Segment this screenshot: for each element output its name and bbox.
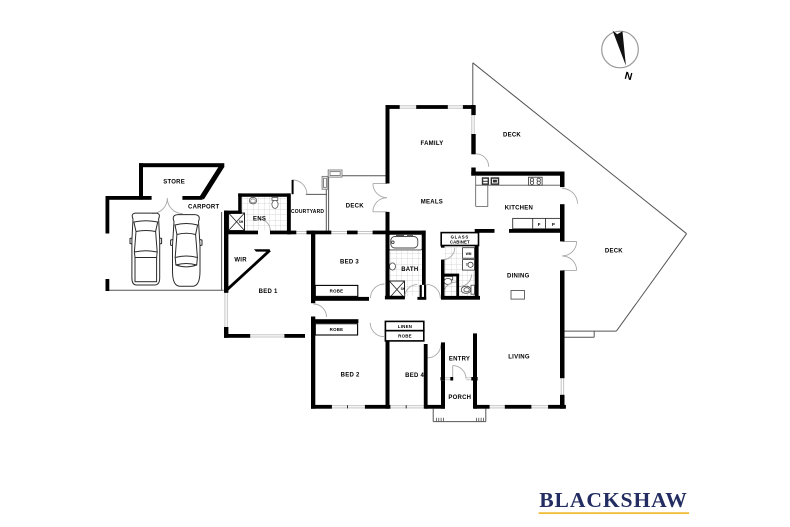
svg-text:PORCH: PORCH — [448, 395, 471, 401]
svg-text:F: F — [538, 222, 541, 227]
svg-text:T: T — [466, 263, 468, 267]
svg-text:BED 2: BED 2 — [341, 373, 360, 379]
svg-text:ROBE: ROBE — [330, 327, 344, 332]
svg-text:ENTRY: ENTRY — [449, 357, 470, 363]
svg-text:DINING: DINING — [507, 274, 530, 280]
svg-text:BATH: BATH — [401, 267, 418, 273]
svg-text:LINEN: LINEN — [398, 324, 412, 329]
svg-text:CABINET: CABINET — [450, 240, 470, 245]
svg-text:DECK: DECK — [503, 133, 521, 139]
svg-text:ENS: ENS — [253, 216, 266, 222]
svg-text:BED 3: BED 3 — [340, 260, 359, 266]
svg-text:BED 4: BED 4 — [405, 373, 424, 379]
svg-text:BED 1: BED 1 — [259, 289, 278, 295]
svg-text:MEALS: MEALS — [421, 199, 443, 205]
svg-text:DECK: DECK — [605, 248, 623, 254]
svg-text:LIVING: LIVING — [508, 355, 530, 361]
svg-text:ROBE: ROBE — [398, 334, 412, 339]
svg-text:KITCHEN: KITCHEN — [505, 206, 533, 212]
svg-text:P: P — [552, 222, 555, 227]
svg-text:FAMILY: FAMILY — [421, 141, 444, 147]
svg-text:COURTYARD: COURTYARD — [291, 209, 324, 215]
svg-text:WIR: WIR — [234, 257, 247, 263]
svg-text:CARPORT: CARPORT — [188, 204, 220, 210]
svg-text:STORE: STORE — [163, 180, 185, 186]
svg-text:DECK: DECK — [346, 204, 364, 210]
svg-text:ROBE: ROBE — [330, 289, 344, 294]
svg-text:SH: SH — [401, 287, 406, 291]
svg-text:WM: WM — [466, 252, 472, 256]
svg-text:SH: SH — [239, 220, 244, 224]
svg-text:BLACKSHAW: BLACKSHAW — [539, 488, 688, 512]
